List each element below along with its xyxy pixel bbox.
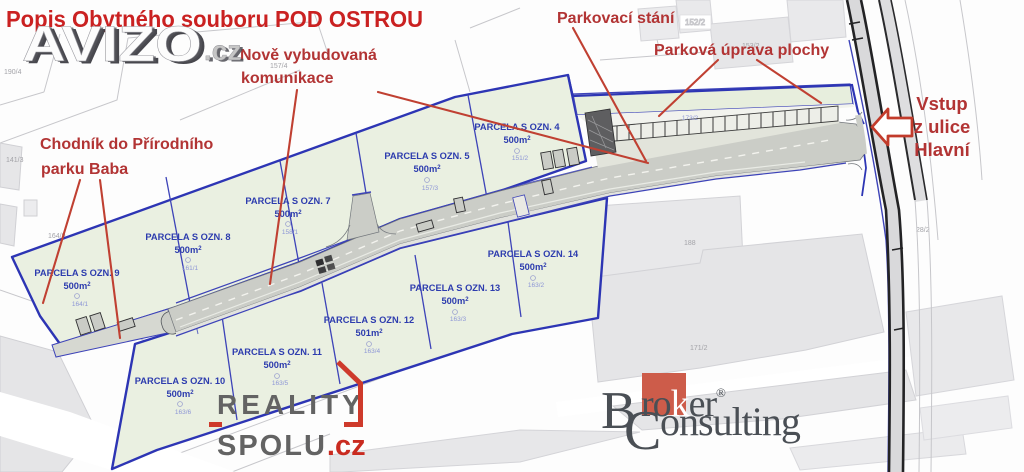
svg-text:500m2: 500m2	[503, 135, 531, 145]
svg-text:163/2: 163/2	[528, 282, 545, 289]
svg-text:157/4: 157/4	[270, 63, 288, 70]
svg-text:500m2: 500m2	[63, 281, 91, 291]
svg-text:PARCELA S OZN. 14: PARCELA S OZN. 14	[488, 249, 579, 259]
svg-text:REALITY: REALITY	[217, 389, 365, 420]
svg-text:.cz: .cz	[204, 35, 241, 66]
svg-text:164/1: 164/1	[72, 301, 89, 308]
svg-text:173/2: 173/2	[682, 115, 699, 122]
svg-text:151/2: 151/2	[512, 155, 529, 162]
svg-text:157/3: 157/3	[422, 185, 439, 192]
svg-text:163/4: 163/4	[364, 348, 381, 355]
svg-text:SPOLU.cz: SPOLU.cz	[217, 430, 366, 462]
svg-text:501m2: 501m2	[355, 328, 383, 338]
svg-text:500m2: 500m2	[413, 164, 441, 174]
svg-text:188: 188	[684, 240, 696, 247]
svg-text:PARCELA S OZN. 4: PARCELA S OZN. 4	[474, 122, 560, 132]
svg-text:500m2: 500m2	[519, 262, 547, 272]
svg-text:PARCELA S OZN. 8: PARCELA S OZN. 8	[145, 232, 230, 242]
svg-text:163/6: 163/6	[175, 409, 192, 416]
svg-text:PARCELA S OZN. 11: PARCELA S OZN. 11	[232, 347, 322, 357]
svg-text:PARCELA S OZN. 9: PARCELA S OZN. 9	[34, 268, 119, 278]
svg-text:PARCELA S OZN. 5: PARCELA S OZN. 5	[384, 151, 469, 161]
svg-text:152/2: 152/2	[685, 18, 706, 27]
svg-text:Hlavní: Hlavní	[914, 139, 970, 160]
svg-text:komunikace: komunikace	[241, 70, 334, 87]
svg-text:PARCELA S OZN. 7: PARCELA S OZN. 7	[245, 196, 330, 206]
svg-text:onsulting: onsulting	[660, 399, 801, 444]
svg-text:500m2: 500m2	[441, 296, 469, 306]
svg-text:PARCELA S OZN. 13: PARCELA S OZN. 13	[410, 283, 500, 293]
svg-text:500m2: 500m2	[174, 245, 202, 255]
svg-text:161/1: 161/1	[182, 265, 199, 272]
svg-text:z ulice: z ulice	[914, 116, 971, 137]
svg-text:500m2: 500m2	[263, 360, 291, 370]
svg-text:®: ®	[716, 385, 726, 400]
svg-text:500m2: 500m2	[166, 389, 194, 399]
svg-text:parku Baba: parku Baba	[41, 161, 128, 178]
svg-text:171/2: 171/2	[690, 345, 708, 352]
svg-text:163/5: 163/5	[272, 380, 289, 387]
svg-text:Nově vybudovaná: Nově vybudovaná	[240, 47, 377, 64]
svg-text:163/3: 163/3	[450, 316, 467, 323]
svg-text:158/1: 158/1	[282, 229, 299, 236]
svg-text:Chodník do Přírodního: Chodník do Přírodního	[40, 136, 214, 153]
svg-text:Parkovací stání: Parkovací stání	[557, 10, 675, 27]
svg-text:PARCELA S OZN. 12: PARCELA S OZN. 12	[324, 315, 414, 325]
svg-text:PARCELA S OZN. 10: PARCELA S OZN. 10	[135, 376, 225, 386]
svg-text:AVIZO: AVIZO	[22, 16, 202, 72]
svg-text:141/3: 141/3	[6, 157, 24, 164]
svg-text:Vstup: Vstup	[916, 93, 967, 114]
svg-text:C: C	[624, 400, 661, 462]
svg-text:190/4: 190/4	[4, 69, 22, 76]
svg-text:Parková úprava plochy: Parková úprava plochy	[654, 42, 829, 59]
svg-text:28/2: 28/2	[916, 227, 930, 234]
